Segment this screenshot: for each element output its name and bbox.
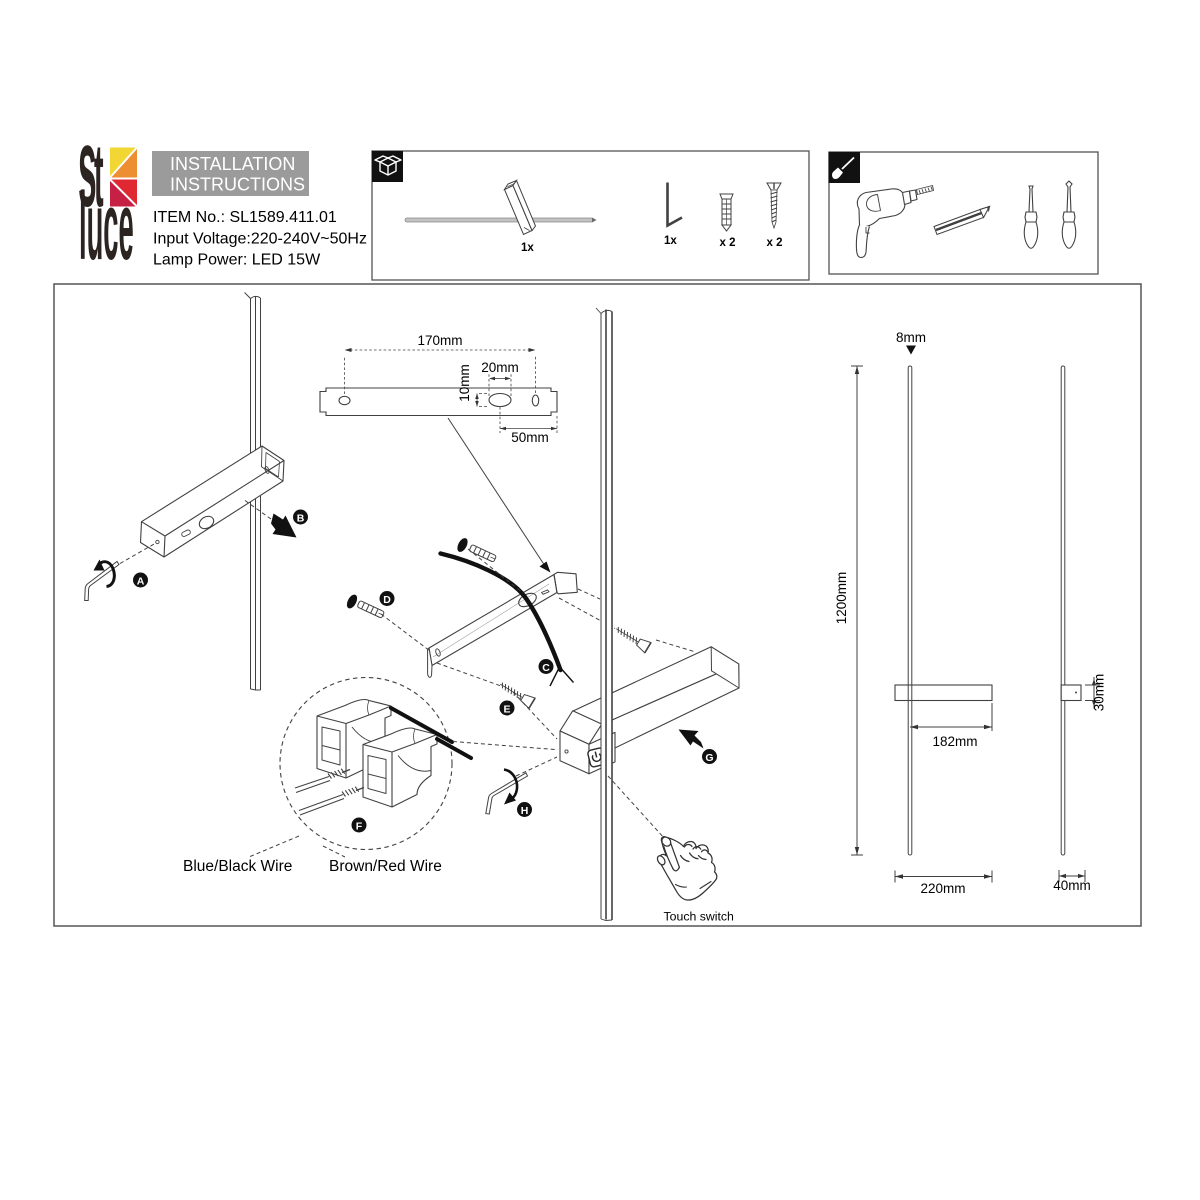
svg-text:30mm: 30mm (1092, 674, 1107, 712)
svg-text:1200mm: 1200mm (834, 572, 849, 625)
svg-text:Lamp Power: LED 15W: Lamp Power: LED 15W (153, 252, 321, 269)
svg-text:B: B (297, 513, 305, 525)
svg-text:170mm: 170mm (417, 333, 462, 348)
svg-text:10mm: 10mm (457, 364, 472, 402)
svg-text:A: A (137, 576, 145, 588)
svg-text:ITEM No.: SL1589.411.01: ITEM No.: SL1589.411.01 (153, 209, 337, 226)
svg-text:E: E (503, 704, 510, 716)
svg-text:Brown/Red Wire: Brown/Red Wire (329, 858, 442, 875)
svg-text:INSTRUCTIONS: INSTRUCTIONS (170, 175, 305, 195)
svg-text:Touch switch: Touch switch (664, 910, 735, 924)
svg-text:1x: 1x (521, 242, 534, 254)
svg-text:F: F (356, 821, 363, 833)
svg-text:x 2: x 2 (720, 237, 736, 249)
svg-text:D: D (383, 594, 391, 606)
svg-text:Blue/Black Wire: Blue/Black Wire (183, 858, 292, 875)
svg-text:x 2: x 2 (767, 237, 783, 249)
svg-text:INSTALLATION: INSTALLATION (170, 154, 295, 174)
svg-text:1x: 1x (664, 235, 677, 247)
svg-text:50mm: 50mm (511, 430, 549, 445)
svg-text:40mm: 40mm (1053, 878, 1091, 893)
svg-text:C: C (542, 662, 550, 674)
svg-text:20mm: 20mm (481, 360, 519, 375)
svg-text:220mm: 220mm (920, 881, 965, 896)
svg-text:H: H (521, 805, 529, 817)
svg-text:G: G (705, 752, 713, 764)
svg-text:Input Voltage:220-240V~50Hz: Input Voltage:220-240V~50Hz (153, 231, 367, 248)
svg-text:182mm: 182mm (932, 734, 977, 749)
svg-text:8mm: 8mm (896, 330, 926, 345)
